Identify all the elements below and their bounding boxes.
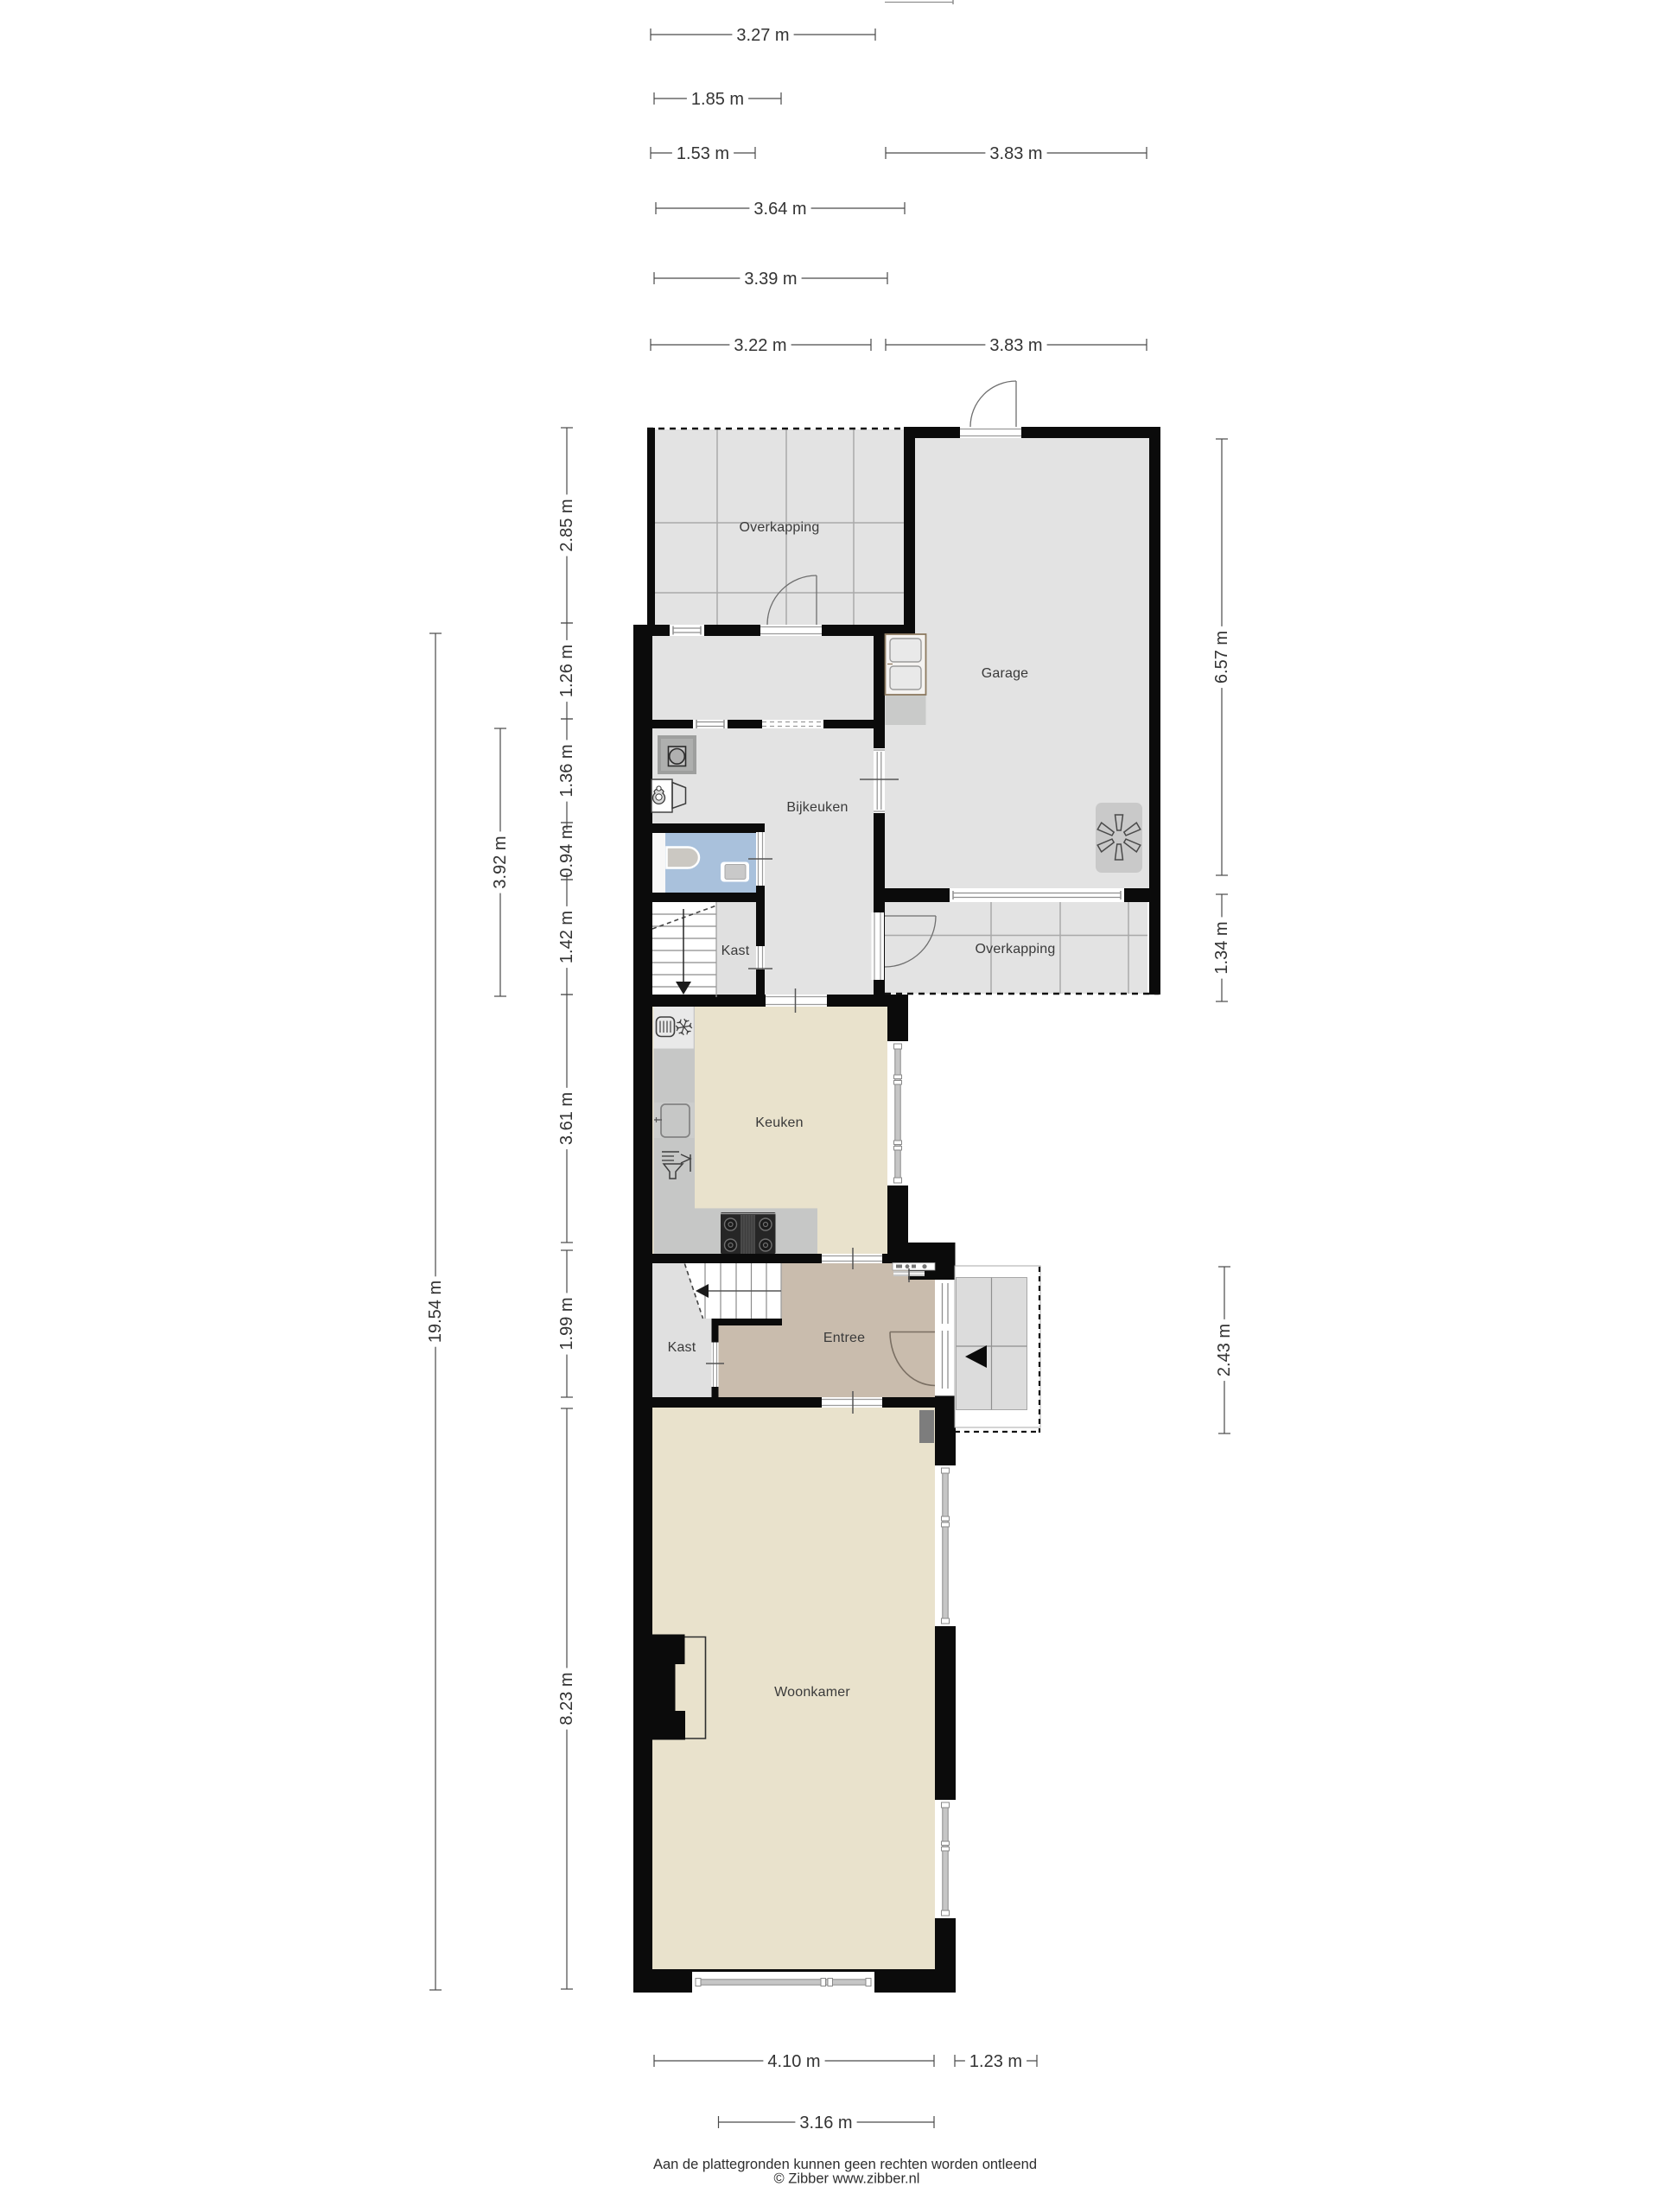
svg-text:3.16 m: 3.16 m xyxy=(799,2113,852,2133)
svg-text:3.92 m: 3.92 m xyxy=(491,836,510,888)
svg-text:2.85 m: 2.85 m xyxy=(557,499,576,551)
svg-text:© Zibber www.zibber.nl: © Zibber www.zibber.nl xyxy=(774,2171,920,2187)
svg-text:1.23 m: 1.23 m xyxy=(969,2052,1022,2071)
svg-text:1.85 m: 1.85 m xyxy=(691,90,744,109)
svg-text:Overkapping: Overkapping xyxy=(740,520,820,535)
svg-text:3.83 m: 3.83 m xyxy=(989,336,1042,355)
svg-text:1.99 m: 1.99 m xyxy=(557,1297,576,1350)
svg-text:3.22 m: 3.22 m xyxy=(734,336,786,355)
svg-text:4.10 m: 4.10 m xyxy=(767,2052,820,2071)
svg-text:3.39 m: 3.39 m xyxy=(744,270,797,289)
svg-text:Kast: Kast xyxy=(668,1340,696,1355)
svg-text:1.53 m: 1.53 m xyxy=(677,144,729,163)
svg-text:Aan de plattegronden kunnen ge: Aan de plattegronden kunnen geen rechten… xyxy=(653,2157,1037,2172)
svg-text:Kast: Kast xyxy=(721,944,750,958)
svg-text:Bijkeuken: Bijkeuken xyxy=(786,800,848,815)
svg-text:Woonkamer: Woonkamer xyxy=(774,1685,850,1700)
svg-text:3.61 m: 3.61 m xyxy=(557,1092,576,1145)
svg-text:1.34 m: 1.34 m xyxy=(1212,921,1231,974)
svg-text:Keuken: Keuken xyxy=(755,1116,803,1130)
svg-text:1.26 m: 1.26 m xyxy=(557,645,576,697)
svg-text:2.43 m: 2.43 m xyxy=(1215,1324,1234,1376)
svg-text:1.36 m: 1.36 m xyxy=(557,744,576,797)
svg-text:19.54 m: 19.54 m xyxy=(426,1281,445,1343)
svg-text:3.83 m: 3.83 m xyxy=(989,144,1042,163)
svg-text:0.94 m: 0.94 m xyxy=(557,824,576,877)
svg-text:8.23 m: 8.23 m xyxy=(557,1672,576,1725)
svg-text:Overkapping: Overkapping xyxy=(976,942,1056,957)
svg-text:1.42 m: 1.42 m xyxy=(557,911,576,963)
svg-text:3.27 m: 3.27 m xyxy=(736,26,789,45)
svg-text:6.57 m: 6.57 m xyxy=(1212,631,1231,683)
svg-text:Garage: Garage xyxy=(982,666,1029,681)
svg-text:3.64 m: 3.64 m xyxy=(753,200,806,219)
svg-text:Entree: Entree xyxy=(823,1331,865,1345)
